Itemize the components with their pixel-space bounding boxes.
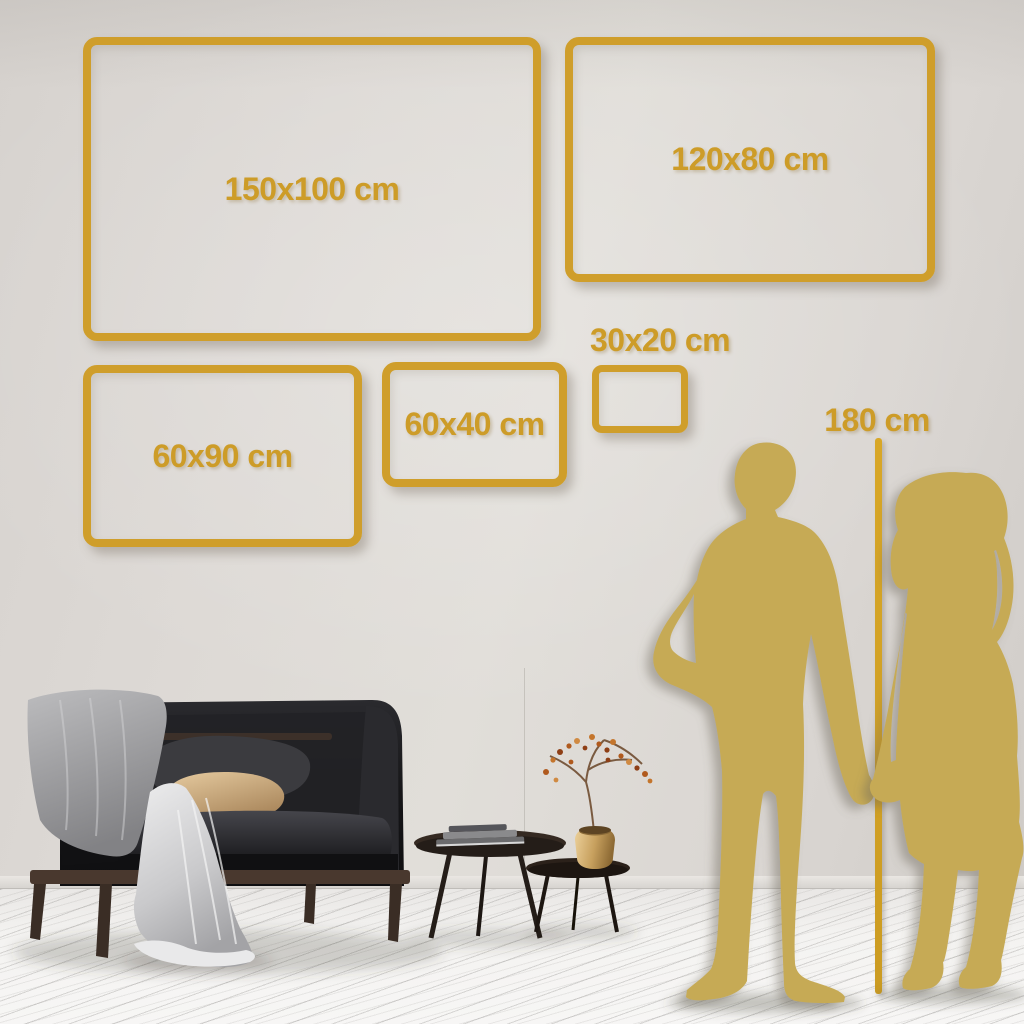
sofa-leg [388,884,402,942]
couple-silhouette-icon [620,425,1024,1024]
sofa-leg [30,884,46,940]
size-label-30x20: 30x20 cm [590,322,730,359]
coffee-table-small-icon [526,858,630,932]
woman-silhouette-icon [870,472,1024,990]
size-label-60x90: 60x90 cm [152,438,292,475]
size-label-150x100: 150x100 cm [225,171,400,208]
books-icon [436,823,525,846]
vase-icon [575,826,615,869]
size-frame-60x40: 60x40 cm [382,362,567,487]
size-frame-120x80: 120x80 cm [565,37,935,282]
man-silhouette-icon [653,442,874,1003]
living-room-furniture [0,640,700,1024]
size-label-60x40: 60x40 cm [404,406,544,443]
sofa-leg [304,884,316,924]
size-frame-150x100: 150x100 cm [83,37,541,341]
size-frame-60x90: 60x90 cm [83,365,362,547]
size-label-120x80: 120x80 cm [671,141,828,178]
size-frame-30x20 [592,365,688,433]
